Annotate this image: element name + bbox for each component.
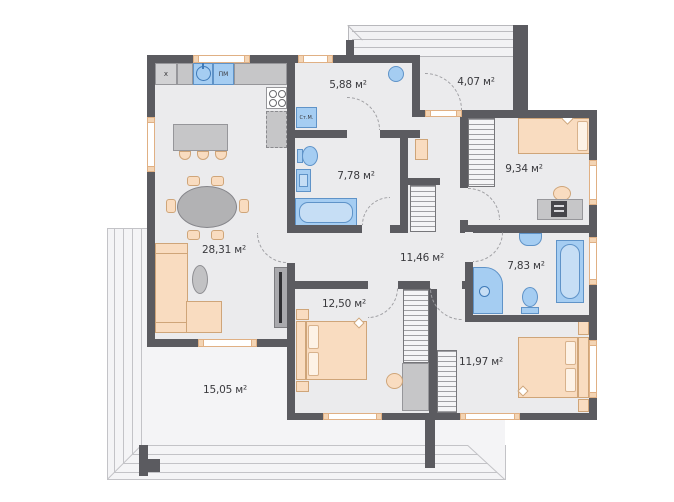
dishwasher-label: ПМ <box>219 71 229 78</box>
wall-top <box>147 55 420 63</box>
deck-line-v4 <box>141 228 142 445</box>
bathtub-2-inner <box>560 244 580 299</box>
vanity-sink-1-basin <box>299 174 308 187</box>
door-opening-bedroom1 <box>460 188 468 220</box>
deck-line-v2 <box>123 228 124 463</box>
shower-drain-icon <box>479 286 490 297</box>
door-opening-laundry <box>347 130 380 138</box>
bed-bedroom2-headboard <box>296 321 306 380</box>
window-living-left <box>147 117 155 172</box>
deck-post-arm <box>148 459 160 472</box>
deck-wall-stub <box>425 420 435 468</box>
deck-line-v1 <box>114 228 115 472</box>
window-bedroom1-right <box>589 160 597 205</box>
room-label-living: 28,31 м² <box>202 244 246 256</box>
computer <box>551 201 567 217</box>
deck-edge-right <box>505 445 506 480</box>
porch <box>348 25 515 57</box>
computer-detail-2 <box>554 210 564 212</box>
wall-porch-right <box>513 25 528 117</box>
boiler <box>388 66 404 82</box>
bed-bedroom3-pillow-1 <box>565 341 576 365</box>
wall-bedroom1-top <box>460 110 597 118</box>
window-kitchen <box>193 55 250 63</box>
window-bedroom2-bottom <box>323 413 382 420</box>
porch-step-line-2 <box>352 39 513 40</box>
wall-left <box>147 55 155 347</box>
deck-edge-bottom <box>107 479 506 480</box>
wardrobe-bedroom1 <box>468 118 495 187</box>
fridge-label: x <box>164 70 168 78</box>
room-label-hall: 11,46 м² <box>400 252 444 264</box>
room-label-terrace: 15,05 м² <box>203 384 247 396</box>
room-label-laundry: 5,88 м² <box>329 79 366 91</box>
door-opening-bath2 <box>465 232 473 262</box>
dining-chair-top-1 <box>187 176 200 186</box>
kitchen-sink-faucet-icon <box>202 63 204 69</box>
window-bedroom3-right <box>589 340 597 398</box>
deck-line-v3 <box>132 228 133 454</box>
porch-step-line-3 <box>352 47 513 48</box>
coffee-table <box>192 265 208 294</box>
wardrobe-hall-upper <box>410 185 436 232</box>
dining-chair-bottom-2 <box>211 230 224 240</box>
window-bath2-right <box>589 237 597 285</box>
bed-bedroom1-pillow <box>577 121 588 151</box>
fridge: x <box>155 63 177 85</box>
stove-burner-1 <box>269 90 277 98</box>
door-opening-living-hall <box>287 233 295 263</box>
hall-corridor-floor <box>295 233 473 288</box>
bed-bedroom2-pillow-1 <box>308 325 319 349</box>
deck-edge-left <box>107 228 108 480</box>
room-label-bath1: 7,78 м² <box>337 170 374 182</box>
desk-bedroom2 <box>402 363 429 411</box>
deck-step-line-4 <box>141 445 468 446</box>
dining-chair-left <box>166 199 176 213</box>
wardrobe-hall-lower <box>403 289 429 363</box>
room-label-entry: 4,07 м² <box>457 76 494 88</box>
deck-post <box>139 445 148 476</box>
toilet-bowl-2 <box>522 287 538 307</box>
wall-bath1-right <box>400 138 408 233</box>
kitchen-cabinet <box>266 111 287 148</box>
vanity-sink-2 <box>519 233 542 246</box>
terrace-door <box>198 339 257 347</box>
nightstand-bedroom2-top <box>296 309 309 320</box>
bed-bedroom3-headboard <box>578 337 589 398</box>
toilet-tank-2 <box>521 307 539 314</box>
dining-table <box>177 186 237 228</box>
kitchen-island <box>173 124 228 151</box>
kitchen-sink-icon <box>196 66 211 81</box>
stove-burner-4 <box>278 99 286 107</box>
deck-step-line-1 <box>114 472 497 473</box>
dishwasher: ПМ <box>213 63 234 85</box>
stove-burner-3 <box>269 99 277 107</box>
nightstand-bedroom2-bottom <box>296 381 309 392</box>
room-label-bedroom2: 12,50 м² <box>322 298 366 310</box>
wall-bath2-bottom <box>465 315 597 322</box>
tv-screen <box>279 272 282 323</box>
entry-door-threshold <box>425 110 462 117</box>
sofa-armrest-line-1 <box>156 253 187 254</box>
bed-bedroom3-pillow-2 <box>565 368 576 392</box>
bathtub-1-inner <box>299 202 353 223</box>
room-label-bedroom1: 9,34 м² <box>505 163 542 175</box>
terrace-deck-steps-band <box>107 420 505 480</box>
wall-bedroom2-right <box>429 288 437 420</box>
nightstand-bedroom3-bottom <box>578 399 589 412</box>
window-laundry <box>298 55 333 63</box>
room-label-bedroom3: 11,97 м² <box>459 356 503 368</box>
porch-step-line-1 <box>352 31 513 32</box>
sofa-armrest-line-2 <box>156 322 187 323</box>
window-bedroom3-bottom <box>460 413 520 420</box>
stove-burner-2 <box>278 90 286 98</box>
vestibule-cabinet <box>415 139 428 160</box>
kitchen-counter-1 <box>177 63 193 85</box>
sofa-chaise <box>186 301 222 333</box>
dining-chair-bottom-1 <box>187 230 200 240</box>
bed-bedroom2-pillow-2 <box>308 352 319 376</box>
washing-machine-label: Ст.М. <box>300 115 314 121</box>
kitchen-counter-2 <box>234 63 287 85</box>
door-opening-bath1 <box>362 225 390 233</box>
computer-detail-1 <box>554 205 564 207</box>
dining-chair-top-2 <box>211 176 224 186</box>
wardrobe-bedroom3 <box>437 350 457 413</box>
sofa-vertical <box>155 243 188 333</box>
room-label-bath2: 7,83 м² <box>507 260 544 272</box>
wall-laundry-entry-divider <box>412 55 420 117</box>
wall-hall-wardrobe-top <box>404 178 440 185</box>
toilet-bowl-1 <box>302 146 318 166</box>
desk-chair-bedroom2 <box>386 373 403 389</box>
washing-machine: Ст.М. <box>296 107 317 128</box>
dining-chair-right <box>239 199 249 213</box>
floor-plan: x ПМ Ст.М. <box>0 0 674 502</box>
